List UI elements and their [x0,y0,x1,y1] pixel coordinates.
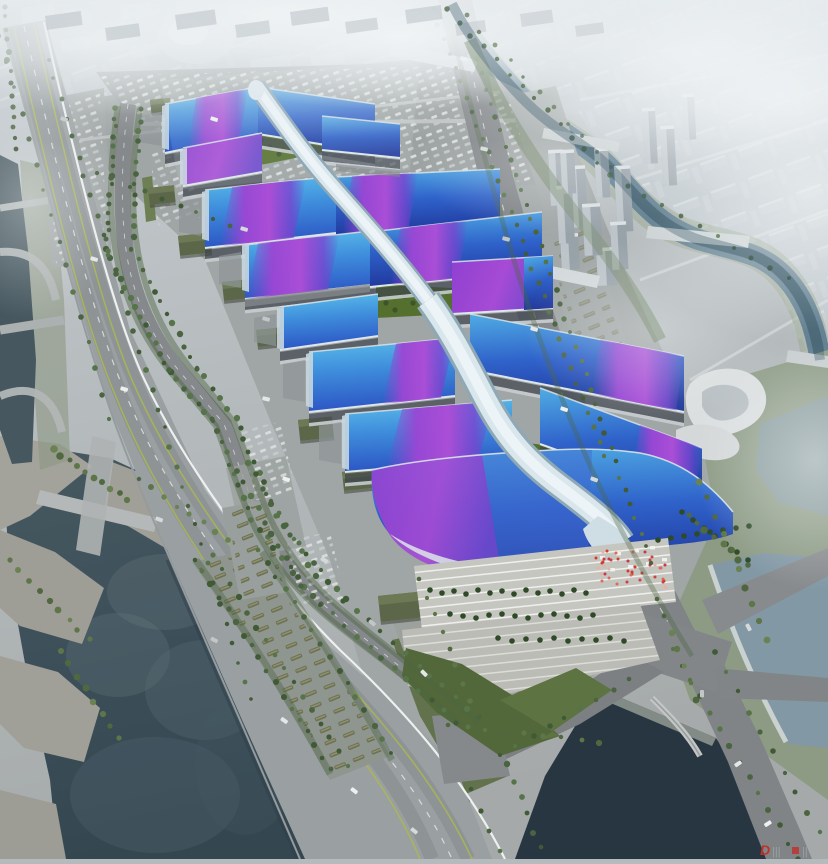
svg-text:||: || [802,846,808,858]
svg-text:|||: ||| [772,846,781,858]
svg-text:D: D [760,842,770,858]
